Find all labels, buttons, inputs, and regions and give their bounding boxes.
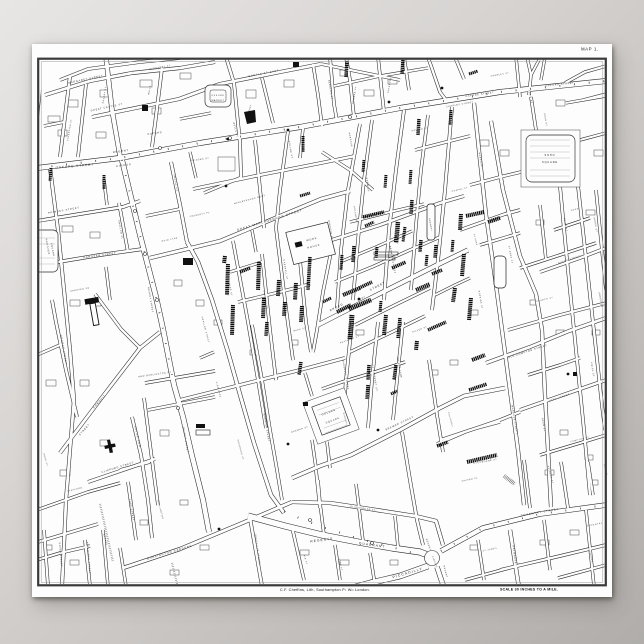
svg-text:SQUARE: SQUARE — [542, 161, 558, 164]
svg-text:SCALE 30 INCHES TO A MILE.: SCALE 30 INCHES TO A MILE. — [500, 588, 558, 592]
svg-text:OXFORD: OXFORD — [211, 95, 224, 97]
svg-text:SOHO: SOHO — [545, 154, 556, 157]
svg-text:C.F. Cheffins, Lith, Southampt: C.F. Cheffins, Lith, Southampton Pl. Wm … — [280, 588, 370, 592]
svg-text:MAP 1.: MAP 1. — [581, 47, 599, 52]
svg-text:MARKET: MARKET — [212, 99, 225, 102]
